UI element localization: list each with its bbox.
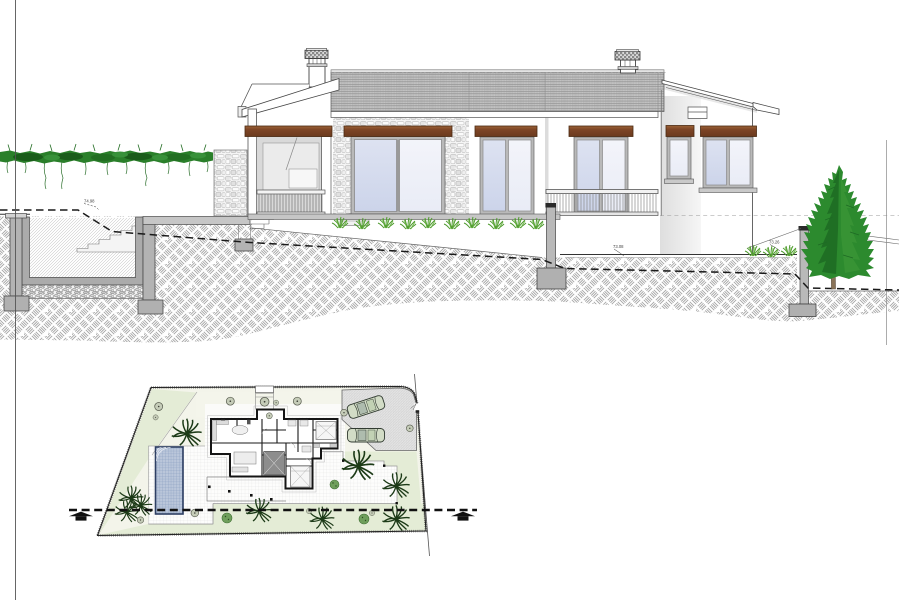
svg-text:73.26: 73.26 (769, 240, 780, 245)
svg-text:73.08: 73.08 (613, 244, 624, 249)
svg-text:74.98: 74.98 (84, 199, 95, 204)
